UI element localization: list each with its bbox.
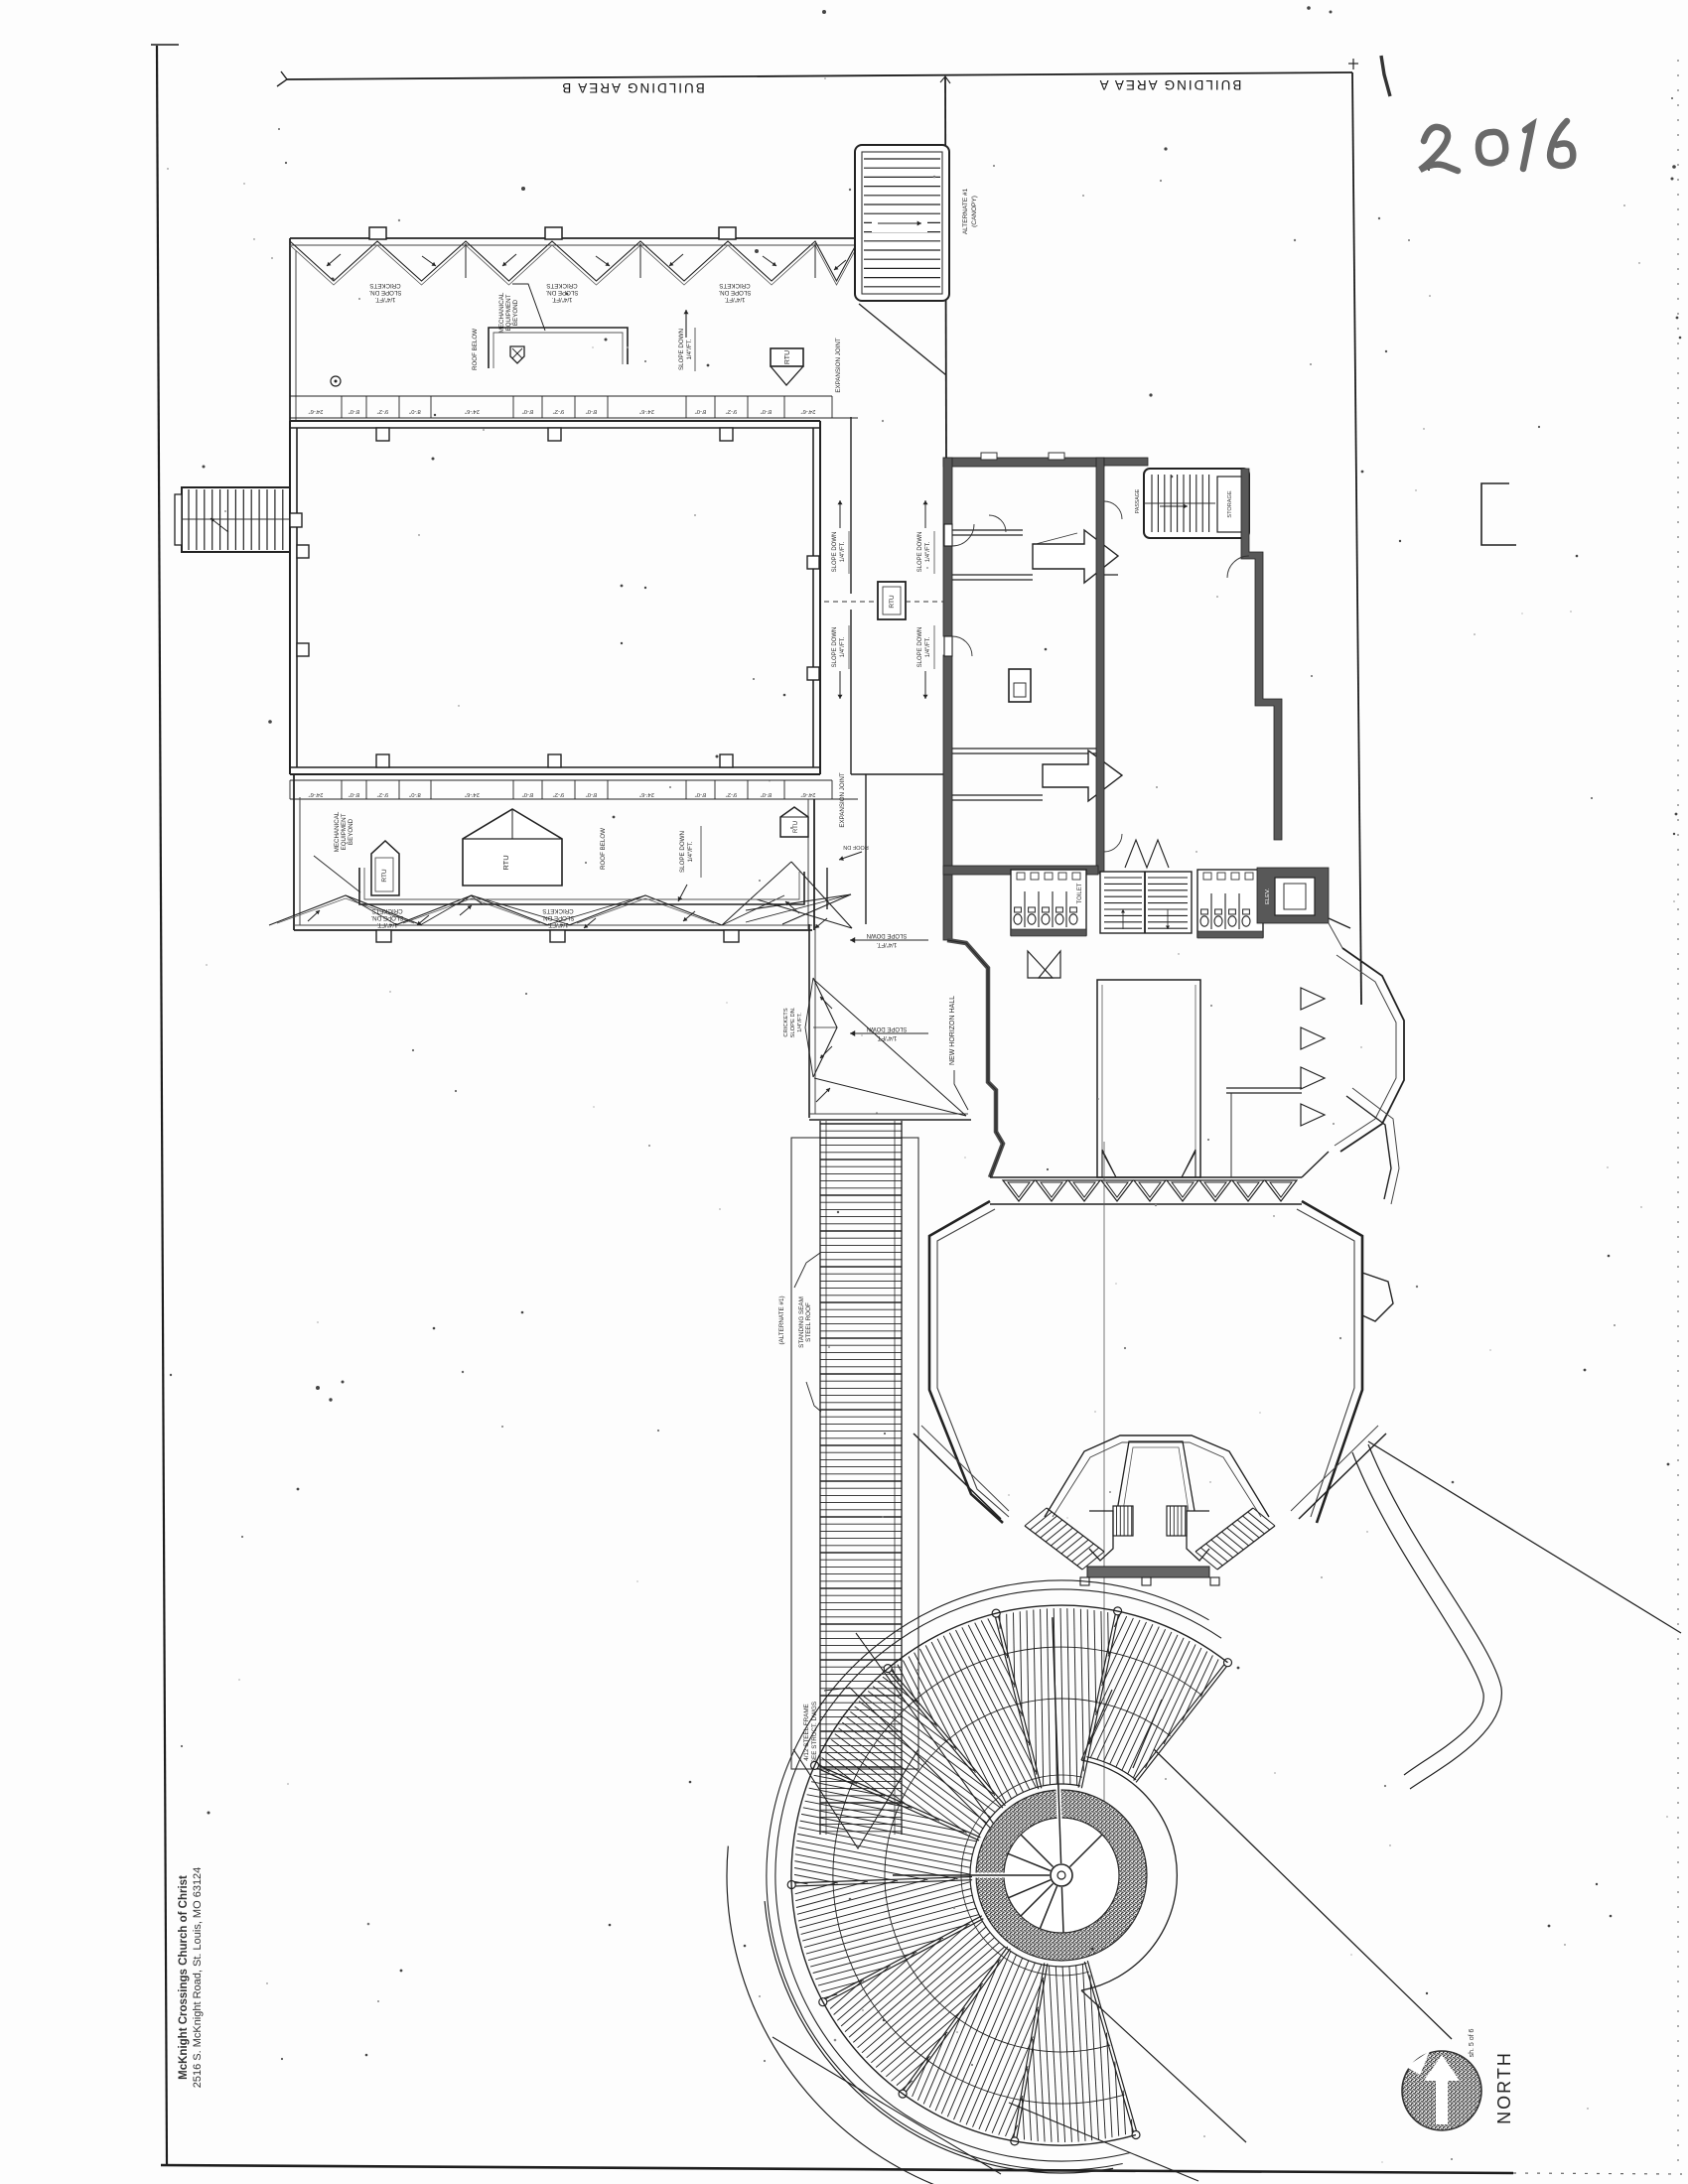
- svg-text:8′-0″: 8′-0″: [349, 791, 360, 797]
- svg-text:24′-6″: 24′-6″: [639, 408, 654, 414]
- svg-text:24′-6″: 24′-6″: [801, 791, 816, 797]
- svg-text:9′-2″: 9′-2″: [726, 408, 738, 414]
- svg-text:24′-6″: 24′-6″: [465, 791, 480, 797]
- svg-text:8′-0″: 8′-0″: [349, 408, 360, 414]
- svg-text:1/4"/FT.: 1/4"/FT.: [551, 296, 572, 303]
- svg-text:ROOF DN: ROOF DN: [843, 844, 868, 850]
- svg-text:8′-0″: 8′-0″: [522, 791, 534, 797]
- svg-text:CRICKETS: CRICKETS: [719, 282, 750, 289]
- svg-text:RTU: RTU: [381, 869, 388, 883]
- svg-text:8′-0″: 8′-0″: [761, 791, 773, 797]
- svg-text:EQUIPMENT: EQUIPMENT: [341, 813, 348, 850]
- svg-text:24′-6″: 24′-6″: [309, 791, 324, 797]
- svg-text:1/4"/FT.: 1/4"/FT.: [376, 921, 397, 928]
- svg-text:SLOPE DOWN: SLOPE DOWN: [867, 932, 908, 938]
- svg-text:8′-0″: 8′-0″: [586, 791, 598, 797]
- svg-text:TOILET: TOILET: [1077, 883, 1083, 903]
- svg-text:9′-2″: 9′-2″: [553, 791, 565, 797]
- svg-text:ELEV.: ELEV.: [1265, 888, 1271, 904]
- svg-text:RTU: RTU: [793, 821, 799, 833]
- svg-text:8′-0″: 8′-0″: [586, 408, 598, 414]
- svg-text:BEYOND: BEYOND: [348, 818, 354, 845]
- svg-text:1/4″/FT.: 1/4″/FT.: [925, 636, 931, 657]
- svg-text:8′-0″: 8′-0″: [409, 791, 421, 797]
- svg-text:8′-0″: 8′-0″: [695, 408, 707, 414]
- svg-text:sh. 5 of 6: sh. 5 of 6: [1469, 2028, 1476, 2057]
- svg-text:SLOPE DN.: SLOPE DN.: [790, 1007, 796, 1037]
- svg-text:SLOPE DN.: SLOPE DN.: [370, 914, 403, 921]
- svg-text:EXPANSION JOINT: EXPANSION JOINT: [839, 772, 846, 827]
- svg-text:8′-0″: 8′-0″: [409, 408, 421, 414]
- svg-text:SLOPE DN.: SLOPE DN.: [541, 914, 574, 921]
- svg-text:(ALTERNATE #1): (ALTERNATE #1): [778, 1296, 785, 1344]
- svg-text:MECHANICAL: MECHANICAL: [334, 811, 341, 852]
- svg-text:1/4"/FT.: 1/4"/FT.: [374, 296, 395, 303]
- svg-text:SLOPE DN.: SLOPE DN.: [545, 289, 578, 296]
- svg-text:McKnight Crossings Church of C: McKnight Crossings Church of Christ: [178, 1875, 190, 2080]
- svg-text:SLOPE DN.: SLOPE DN.: [368, 289, 401, 296]
- svg-text:EQUIPMENT: EQUIPMENT: [505, 294, 512, 331]
- svg-text:RTU: RTU: [889, 595, 896, 609]
- svg-text:CRICKETS: CRICKETS: [369, 282, 400, 289]
- svg-text:2516 S. McKnight Road, St. Lou: 2516 S. McKnight Road, St. Louis, MO 631…: [192, 1867, 204, 2089]
- svg-text:1/4"/FT.: 1/4"/FT.: [724, 296, 745, 303]
- svg-text:24′-6″: 24′-6″: [465, 408, 480, 414]
- svg-text:1/4"/FT.: 1/4"/FT.: [797, 1013, 803, 1032]
- svg-text:1/4″/FT.: 1/4″/FT.: [840, 636, 846, 657]
- svg-text:1/4″/FT.: 1/4″/FT.: [840, 541, 846, 562]
- svg-text:1/4"/FT.: 1/4"/FT.: [547, 921, 568, 928]
- svg-text:ALTERNATE #1: ALTERNATE #1: [962, 188, 969, 234]
- svg-text:BUILDING AREA B: BUILDING AREA B: [560, 80, 705, 95]
- svg-text:CRICKETS: CRICKETS: [542, 907, 573, 914]
- svg-text:MECHANICAL: MECHANICAL: [498, 292, 505, 333]
- svg-text:1/4″/FT.: 1/4″/FT.: [686, 339, 693, 359]
- svg-text:SLOPE DOWN: SLOPE DOWN: [832, 532, 838, 573]
- svg-text:9′-2″: 9′-2″: [377, 791, 389, 797]
- svg-text:SLOPE DOWN: SLOPE DOWN: [917, 627, 923, 668]
- svg-text:1/4″/FT.: 1/4″/FT.: [876, 941, 897, 947]
- svg-text:CRICKETS: CRICKETS: [783, 1008, 789, 1036]
- svg-text:ROOF BELOW: ROOF BELOW: [472, 329, 479, 370]
- svg-text:SLOPE DOWN: SLOPE DOWN: [679, 831, 686, 873]
- svg-text:(CANOPY): (CANOPY): [971, 196, 978, 227]
- svg-text:CRICKETS: CRICKETS: [371, 907, 402, 914]
- svg-text:STORAGE: STORAGE: [1227, 490, 1233, 518]
- svg-text:9′-2″: 9′-2″: [553, 408, 565, 414]
- svg-text:8′-0″: 8′-0″: [761, 408, 773, 414]
- svg-text:SLOPE DOWN: SLOPE DOWN: [867, 1025, 908, 1031]
- svg-text:4/12 STEEL FRAME: 4/12 STEEL FRAME: [803, 1704, 810, 1761]
- svg-text:CRICKETS: CRICKETS: [546, 282, 577, 289]
- svg-text:BEYOND: BEYOND: [512, 299, 519, 326]
- svg-text:STEEL ROOF: STEEL ROOF: [805, 1302, 812, 1342]
- svg-text:SLOPE DOWN: SLOPE DOWN: [917, 532, 923, 573]
- svg-text:24′-6″: 24′-6″: [309, 408, 324, 414]
- svg-text:1/4″/FT.: 1/4″/FT.: [925, 541, 931, 562]
- svg-text:NORTH: NORTH: [1494, 2051, 1514, 2124]
- svg-text:RTU: RTU: [501, 855, 510, 870]
- svg-text:SLOPE DOWN: SLOPE DOWN: [832, 627, 838, 668]
- svg-text:EXPANSION JOINT: EXPANSION JOINT: [835, 338, 842, 392]
- svg-text:8′-0″: 8′-0″: [522, 408, 534, 414]
- svg-text:8′-0″: 8′-0″: [695, 791, 707, 797]
- svg-text:STANDING SEAM: STANDING SEAM: [798, 1297, 805, 1348]
- svg-text:1/4″/FT.: 1/4″/FT.: [876, 1034, 897, 1040]
- svg-text:9′-2″: 9′-2″: [377, 408, 389, 414]
- svg-text:SLOPE DOWN: SLOPE DOWN: [678, 329, 685, 370]
- svg-text:9′-2″: 9′-2″: [726, 791, 738, 797]
- svg-text:RTU: RTU: [784, 350, 791, 364]
- svg-text:NEW HORIZON HALL: NEW HORIZON HALL: [949, 996, 956, 1065]
- svg-text:SLOPE DN.: SLOPE DN.: [718, 289, 751, 296]
- svg-text:24′-6″: 24′-6″: [801, 408, 816, 414]
- svg-text:24′-6″: 24′-6″: [639, 791, 654, 797]
- svg-text:1/4″/FT.: 1/4″/FT.: [687, 841, 694, 862]
- svg-text:ROOF BELOW: ROOF BELOW: [600, 828, 607, 870]
- svg-text:PASSAGE: PASSAGE: [1135, 488, 1141, 513]
- svg-text:BUILDING AREA A: BUILDING AREA A: [1098, 77, 1242, 92]
